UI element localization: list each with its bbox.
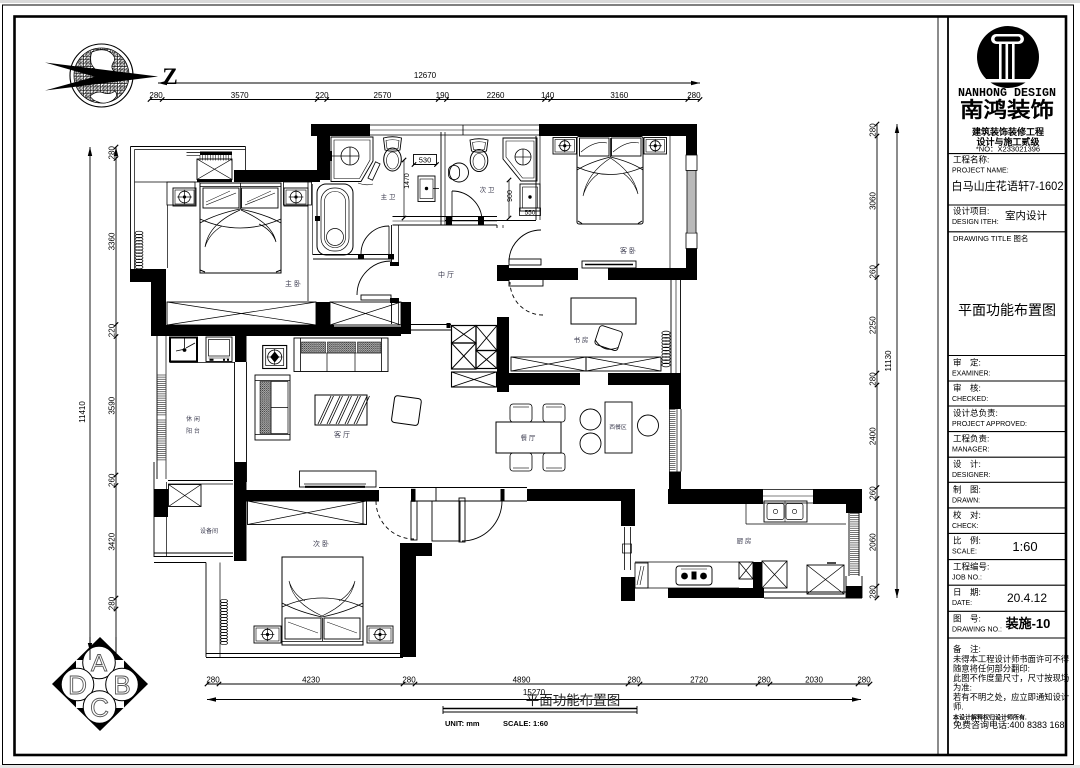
svg-text:4890: 4890 — [513, 676, 531, 685]
svg-text:220: 220 — [108, 323, 117, 337]
svg-text:平面功能布置图: 平面功能布置图 — [526, 693, 621, 708]
svg-text:设 计:: 设 计: — [953, 459, 981, 469]
svg-text:1470: 1470 — [404, 173, 411, 189]
svg-text:1:60: 1:60 — [1012, 539, 1037, 554]
svg-text:次 卧: 次 卧 — [313, 539, 329, 548]
svg-text:为准:: 为准: — [953, 683, 972, 693]
svg-text:装施-10: 装施-10 — [1005, 616, 1051, 631]
svg-text:工程名称:: 工程名称: — [953, 155, 989, 165]
svg-text:设备间: 设备间 — [200, 527, 218, 535]
svg-text:A: A — [91, 650, 107, 677]
svg-text:师.: 师. — [953, 702, 964, 712]
svg-text:若有不明之处，应立即通知设计: 若有不明之处，应立即通知设计 — [953, 692, 1069, 702]
svg-text:DESIGN ITEH:: DESIGN ITEH: — [952, 219, 999, 226]
svg-text:客 卧: 客 卧 — [620, 246, 636, 255]
svg-text:设计项目:: 设计项目: — [953, 206, 989, 216]
svg-text:图 号:: 图 号: — [953, 613, 981, 623]
svg-text:4230: 4230 — [302, 676, 320, 685]
svg-text:PROJECT NAME:: PROJECT NAME: — [952, 168, 1009, 175]
svg-text:制 图:: 制 图: — [953, 484, 981, 494]
svg-text:书 房: 书 房 — [574, 335, 589, 344]
svg-text:3590: 3590 — [108, 396, 117, 414]
svg-text:280: 280 — [206, 676, 220, 685]
svg-text:DRAWING NO.:: DRAWING NO.: — [952, 626, 1002, 633]
svg-text:免费咨询电话:400 8383 168: 免费咨询电话:400 8383 168 — [953, 719, 1065, 730]
svg-text:审 核:: 审 核: — [953, 383, 981, 393]
svg-text:MANAGER:: MANAGER: — [952, 447, 989, 454]
svg-text:CHECKED:: CHECKED: — [952, 396, 988, 403]
svg-text:530: 530 — [419, 156, 432, 165]
svg-text:UNIT: mm: UNIT: mm — [445, 719, 480, 728]
svg-text:2400: 2400 — [869, 427, 878, 445]
svg-text:140: 140 — [541, 91, 555, 100]
svg-text:平面功能布置图: 平面功能布置图 — [958, 302, 1056, 318]
svg-text:次 卫: 次 卫 — [480, 185, 495, 194]
svg-text:DESIGNER:: DESIGNER: — [952, 472, 991, 479]
svg-text:阳 台: 阳 台 — [186, 427, 200, 435]
svg-text:JOB NO.:: JOB NO.: — [952, 575, 982, 582]
svg-text:260: 260 — [869, 486, 878, 500]
svg-text:备 注:: 备 注: — [953, 644, 981, 654]
svg-text:工程负责:: 工程负责: — [953, 434, 989, 444]
svg-text:餐 厅: 餐 厅 — [521, 433, 536, 442]
svg-text:主 卫: 主 卫 — [381, 192, 396, 201]
svg-text:比 例:: 比 例: — [953, 535, 981, 545]
svg-text:280: 280 — [627, 676, 641, 685]
svg-text:550: 550 — [525, 210, 536, 217]
svg-text:280: 280 — [857, 676, 871, 685]
svg-text:DATE:: DATE: — [952, 600, 972, 607]
svg-text:B: B — [113, 670, 130, 700]
svg-text:12670: 12670 — [414, 71, 437, 80]
svg-text:南鸿装饰: 南鸿装饰 — [960, 98, 1054, 122]
svg-text:3060: 3060 — [869, 192, 878, 210]
svg-text:设计总负责:: 设计总负责: — [953, 408, 998, 418]
svg-text:11410: 11410 — [78, 401, 87, 423]
svg-text:DRAWING TITLE 图名: DRAWING TITLE 图名 — [953, 233, 1028, 243]
svg-text:280: 280 — [402, 676, 416, 685]
svg-text:厨 房: 厨 房 — [737, 536, 752, 545]
svg-text:西餐区: 西餐区 — [609, 423, 627, 431]
svg-text:280: 280 — [757, 676, 771, 685]
svg-text:PROJECT APPROVED:: PROJECT APPROVED: — [952, 421, 1027, 428]
svg-text:3570: 3570 — [231, 91, 249, 100]
svg-text:280: 280 — [108, 596, 117, 610]
svg-text:审 定:: 审 定: — [953, 358, 981, 368]
svg-text:3160: 3160 — [610, 91, 628, 100]
svg-text:主 卧: 主 卧 — [285, 279, 301, 288]
svg-text:室内设计: 室内设计 — [1005, 209, 1047, 222]
svg-text:休 闲: 休 闲 — [186, 415, 200, 423]
svg-text:随意将任何部分翻印:: 随意将任何部分翻印: — [953, 664, 1030, 674]
svg-text:日 期:: 日 期: — [953, 587, 981, 597]
svg-text:3420: 3420 — [108, 532, 117, 550]
svg-text:中 厅: 中 厅 — [438, 270, 454, 279]
svg-text:D: D — [68, 670, 87, 700]
svg-text:DRAWN:: DRAWN: — [952, 497, 980, 504]
svg-text:20.4.12: 20.4.12 — [1007, 591, 1047, 605]
svg-text:C: C — [90, 692, 109, 722]
svg-text:900: 900 — [507, 190, 514, 202]
svg-text:260: 260 — [108, 473, 117, 487]
svg-text:SCALE:: SCALE: — [952, 548, 977, 555]
svg-text:280: 280 — [149, 91, 163, 100]
svg-text:Z: Z — [162, 64, 177, 89]
svg-text:校 对:: 校 对: — [953, 510, 981, 520]
svg-text:11130: 11130 — [884, 350, 893, 372]
svg-text:260: 260 — [869, 265, 878, 279]
svg-text:建筑装饰装修工程: 建筑装饰装修工程 — [972, 126, 1044, 137]
svg-text:CHECK:: CHECK: — [952, 523, 979, 530]
svg-text:白马山庄花语轩7-1602: 白马山庄花语轩7-1602 — [952, 179, 1064, 193]
svg-text:3360: 3360 — [108, 232, 117, 250]
svg-text:280: 280 — [869, 585, 878, 599]
svg-text:2570: 2570 — [374, 91, 392, 100]
svg-text:2260: 2260 — [487, 91, 505, 100]
svg-text:客 厅: 客 厅 — [334, 430, 350, 439]
svg-text:2250: 2250 — [869, 316, 878, 334]
svg-text:220: 220 — [315, 91, 329, 100]
svg-text:*NO：X233021396: *NO：X233021396 — [976, 145, 1040, 154]
svg-text:未得本工程设计师书面许可不得: 未得本工程设计师书面许可不得 — [953, 654, 1069, 664]
svg-text:280: 280 — [687, 91, 701, 100]
svg-text:SCALE: 1:60: SCALE: 1:60 — [503, 719, 548, 728]
svg-text:190: 190 — [436, 91, 450, 100]
svg-text:2030: 2030 — [805, 676, 823, 685]
svg-text:2060: 2060 — [869, 533, 878, 551]
svg-text:EXAMINER:: EXAMINER: — [952, 371, 991, 378]
svg-text:280: 280 — [869, 372, 878, 386]
svg-text:此图不作度量尺寸，尺寸按现场: 此图不作度量尺寸，尺寸按现场 — [953, 673, 1069, 683]
svg-text:2720: 2720 — [690, 676, 708, 685]
svg-text:280: 280 — [869, 123, 878, 137]
svg-text:工程编号:: 工程编号: — [953, 562, 989, 572]
